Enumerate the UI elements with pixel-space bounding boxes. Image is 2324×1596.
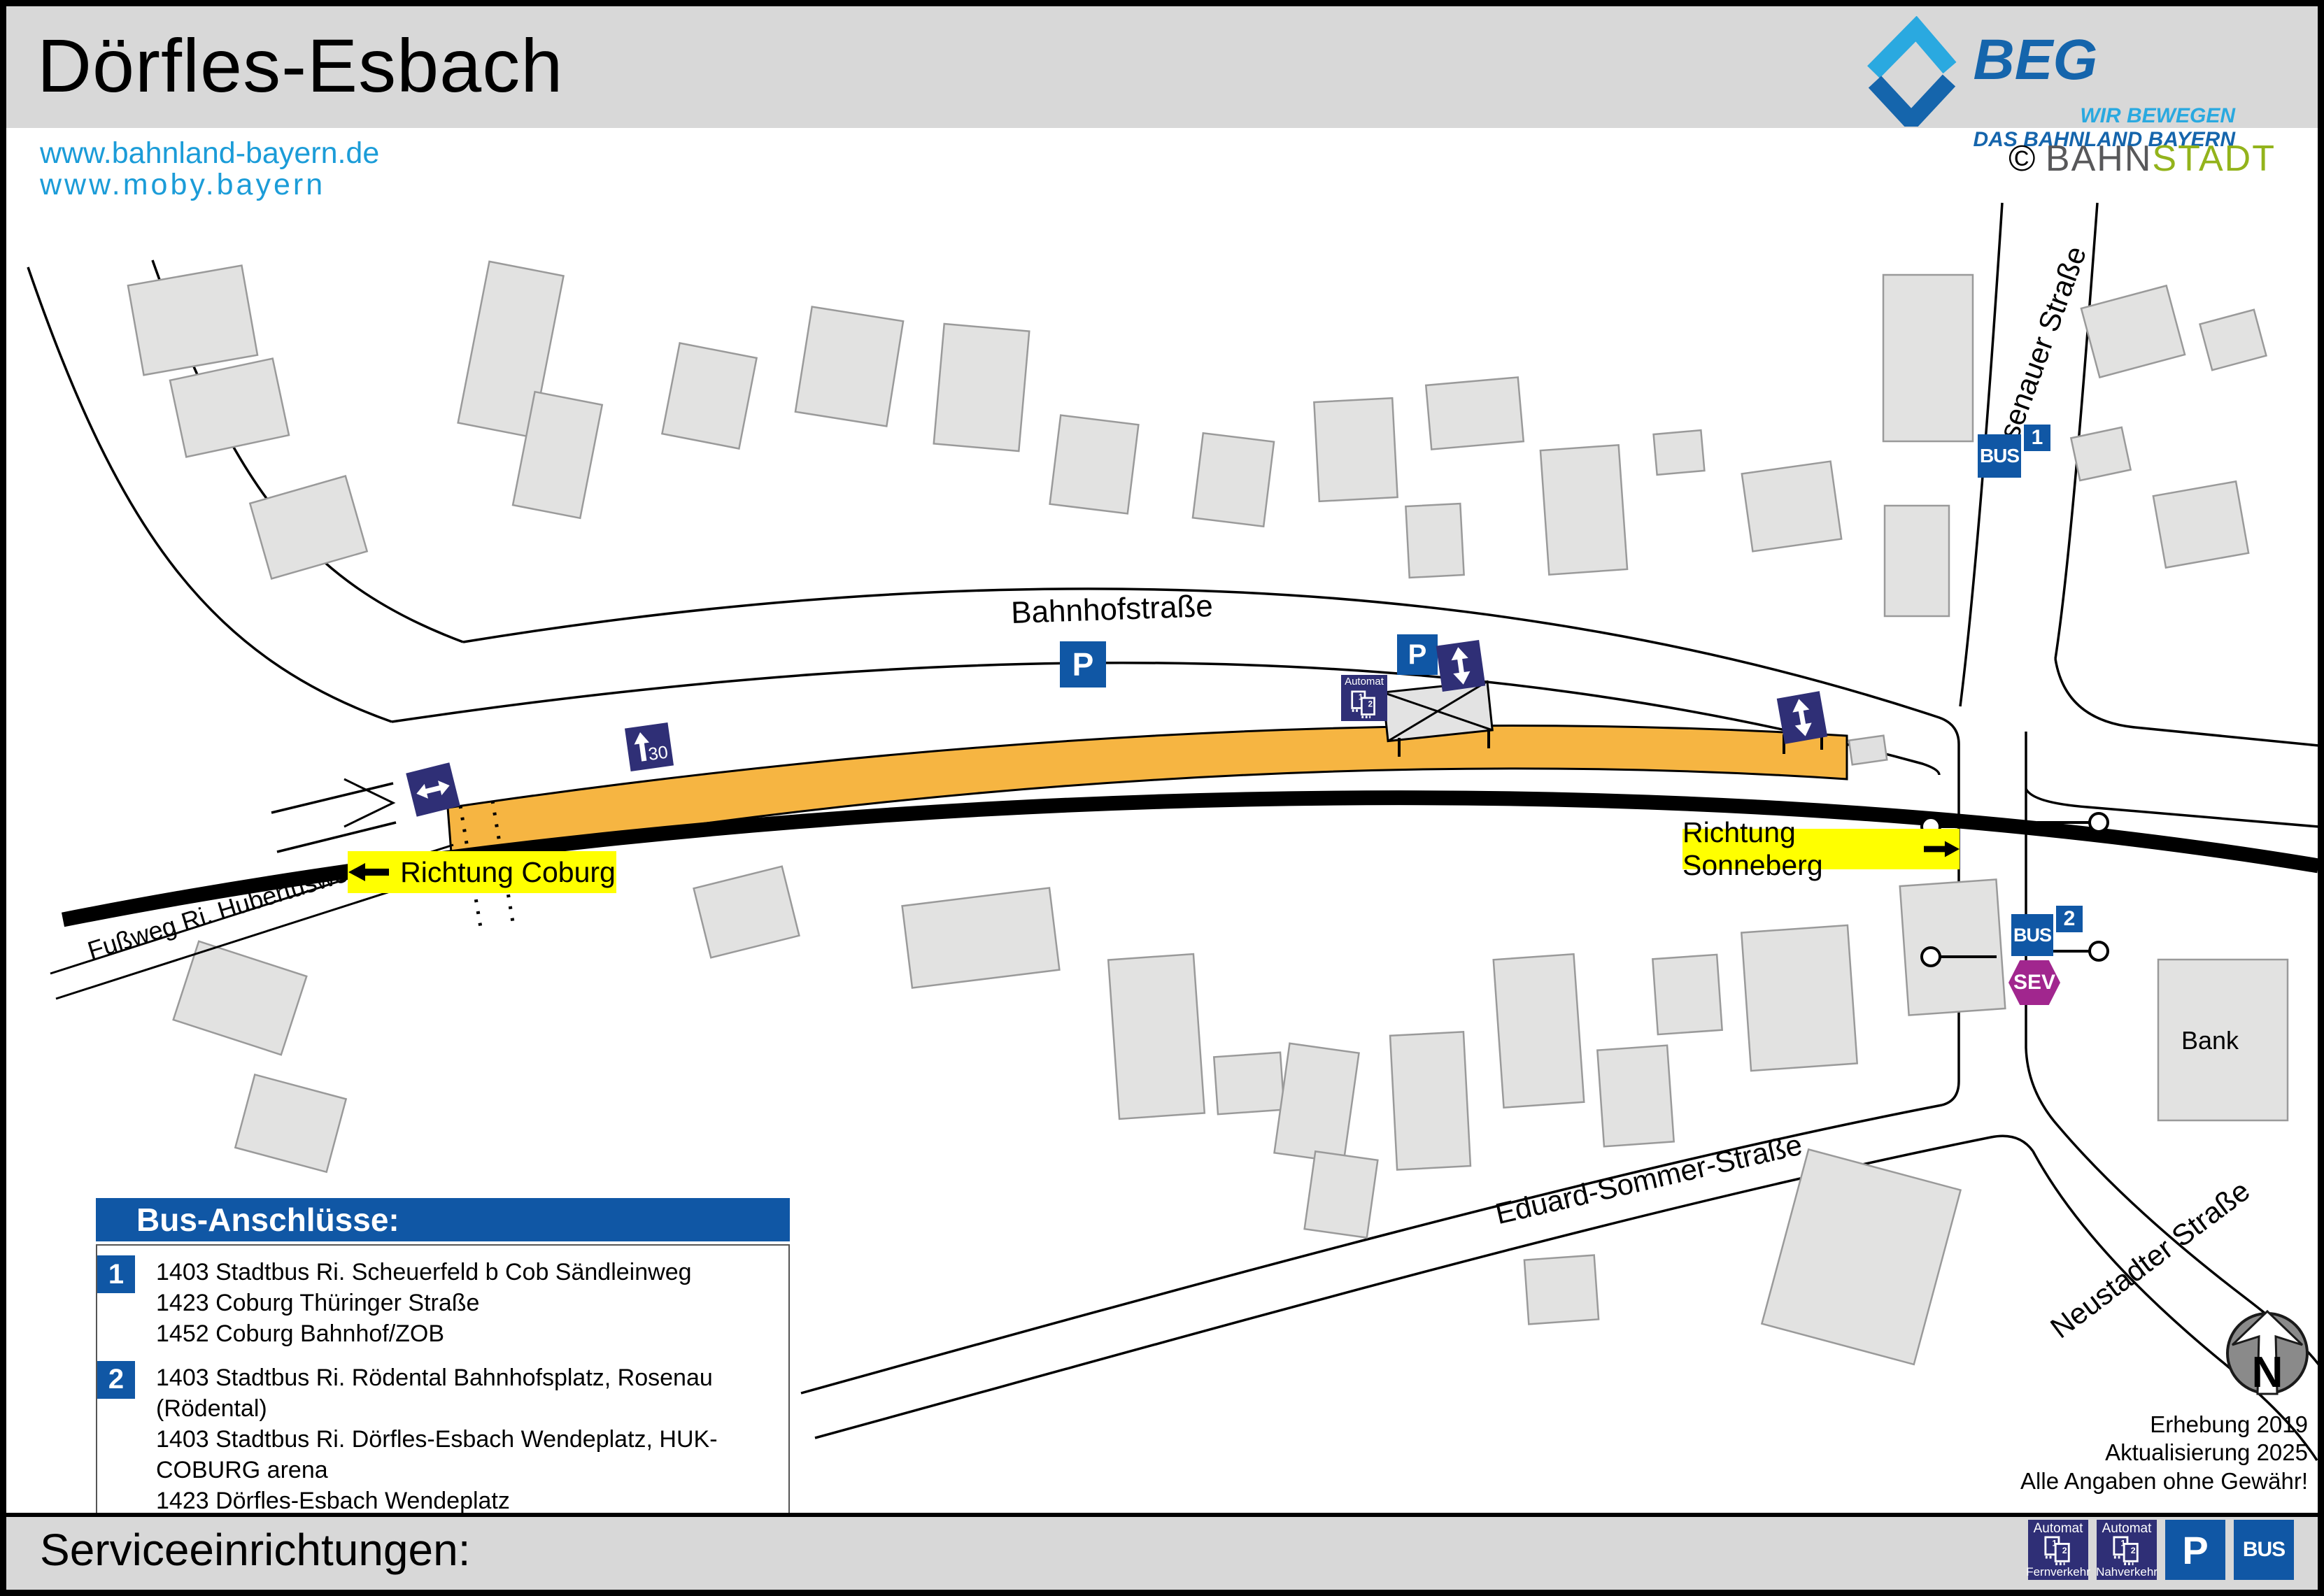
direction-coburg-label: Richtung Coburg: [400, 856, 616, 889]
legend-group-1: 1 1403 Stadtbus Ri. Scheuerfeld b Cob Sä…: [97, 1255, 788, 1350]
svg-text:30: 30: [647, 742, 669, 764]
compass-n: N: [2252, 1348, 2283, 1397]
automat-fernverkehr-icon: Automat 1 2 Fernverkehr: [2028, 1520, 2088, 1580]
building: [795, 307, 903, 427]
copyright-icon: ©: [2008, 138, 2035, 179]
note-survey: Erhebung 2019: [1944, 1411, 2308, 1439]
note-disclaimer: Alle Angaben ohne Gewähr!: [1944, 1467, 2308, 1495]
legend-title: Bus-Anschlüsse:: [96, 1198, 790, 1241]
direction-sonneberg: Richtung Sonneberg: [1682, 829, 1960, 869]
beg-logo: BEG WIR BEWEGEN DAS BAHNLAND BAYERN: [1856, 16, 2235, 152]
building: [1390, 1032, 1471, 1169]
building: [2081, 285, 2185, 377]
legend-stop-1-badge: 1: [97, 1255, 135, 1293]
bahnstadt-stadt: STADT: [2152, 138, 2276, 179]
bus-stop-number: 1: [2032, 426, 2043, 450]
building: [1540, 445, 1627, 574]
building: [1652, 955, 1722, 1034]
building: [1274, 1043, 1359, 1162]
building: [170, 359, 289, 457]
automat-label: Automat: [2034, 1522, 2083, 1535]
beg-wordmark: BEG: [1974, 34, 2235, 86]
shelter: [1383, 681, 1492, 741]
bus-route: 1403 Stadtbus Ri. Rödental Bahnhofsplatz…: [156, 1362, 788, 1424]
building: [250, 476, 367, 579]
building: [1193, 433, 1274, 527]
parking-letter: P: [1072, 646, 1094, 683]
beg-tagline-1: WIR BEWEGEN: [1974, 104, 2235, 128]
sev-label: SEV: [2013, 971, 2055, 995]
svg-text:2: 2: [2131, 1546, 2136, 1555]
building: [2200, 310, 2267, 370]
building: [1108, 954, 1205, 1119]
building: [1654, 430, 1705, 475]
bus-connections-legend: Bus-Anschlüsse: 1 1403 Stadtbus Ri. Sche…: [96, 1198, 790, 1562]
nahverkehr-label: Nahverkehr: [2096, 1566, 2158, 1578]
platform-access-icon-east: [1777, 691, 1828, 744]
platform-marker-30-icon: 30: [625, 722, 674, 771]
building: [1885, 506, 1949, 616]
direction-sonneberg-label: Richtung Sonneberg: [1682, 816, 1913, 882]
link-moby-bayern[interactable]: www.moby.bayern: [40, 169, 379, 201]
parking-icon-east: P: [1397, 634, 1438, 675]
building: [1426, 377, 1524, 449]
bus-label: BUS: [2243, 1538, 2285, 1562]
bahnstadt-credit: © BAHNSTADT: [2008, 138, 2276, 180]
building: [1305, 1151, 1378, 1237]
bahnstadt-bahn: BAHN: [2046, 138, 2152, 179]
bus-route: 1403 Stadtbus Ri. Dörfles-Esbach Wendepl…: [156, 1424, 788, 1485]
building: [662, 343, 756, 449]
bank-label: Bank: [2181, 1026, 2239, 1055]
bus-route: 1403 Stadtbus Ri. Scheuerfeld b Cob Sänd…: [156, 1257, 692, 1288]
arrow-left-icon: [348, 862, 389, 883]
website-links: www.bahnland-bayern.de www.moby.bayern: [40, 138, 379, 201]
link-bahnland-bayern[interactable]: www.bahnland-bayern.de: [40, 138, 379, 169]
automat-nahverkehr-icon: Automat 1 2 Nahverkehr: [2097, 1520, 2157, 1580]
building: [173, 941, 307, 1055]
arrow-right-icon: [1924, 839, 1960, 860]
building: [934, 324, 1030, 451]
fernverkehr-label: Fernverkehr: [2026, 1566, 2090, 1578]
automat-label: Automat: [2102, 1522, 2152, 1535]
bus-stop-2-number: 2: [2056, 906, 2083, 932]
building: [1314, 398, 1397, 501]
bus-label: BUS: [1980, 445, 2019, 467]
svg-text:2: 2: [1368, 699, 1373, 708]
building: [1494, 954, 1585, 1108]
svg-text:2: 2: [2062, 1546, 2067, 1555]
bus-route: 1452 Coburg Bahnhof/ZOB: [156, 1318, 692, 1349]
building: [1900, 879, 2006, 1015]
platform-access-icon-mid: [1436, 640, 1486, 692]
bus-stop-1-number: 1: [2024, 425, 2050, 451]
station-environment-map: Bahnhofstraße Rosenauer Straße Eduard-So…: [0, 0, 2324, 1596]
street-label-bahnhofstrasse: Bahnhofstraße: [1010, 589, 1213, 630]
building: [2153, 481, 2248, 567]
bus-stop-number: 2: [2064, 907, 2076, 931]
building: [1883, 275, 1973, 441]
building: [902, 888, 1060, 988]
bus-label: BUS: [2013, 925, 2051, 946]
bus-stop-1-icon: BUS: [1978, 434, 2021, 478]
beg-diamond-icon: [1856, 16, 1961, 127]
building: [1741, 925, 1857, 1071]
small-structure: [1849, 736, 1887, 765]
building: [2071, 427, 2130, 480]
building: [1050, 415, 1139, 514]
parking-letter: P: [1408, 639, 1427, 671]
building: [235, 1074, 346, 1171]
ticket-machine-icon: Automat 1 2: [1341, 675, 1387, 721]
footer-title: Serviceeinrichtungen:: [40, 1524, 470, 1576]
bus-route: 1423 Dörfles-Esbach Wendeplatz: [156, 1485, 788, 1516]
parking-letter: P: [2182, 1527, 2208, 1573]
building: [1597, 1046, 1673, 1147]
building: [694, 867, 800, 957]
legend-stop-2-badge: 2: [97, 1361, 135, 1399]
automat-label: Automat: [1345, 676, 1384, 687]
north-compass: N: [2223, 1309, 2312, 1402]
parking-icon-west: P: [1060, 641, 1106, 687]
direction-coburg: Richtung Coburg: [348, 851, 616, 893]
building: [1214, 1053, 1284, 1114]
building: [1742, 462, 1841, 552]
bus-service-icon: BUS: [2234, 1520, 2294, 1580]
note-update: Aktualisierung 2025: [1944, 1439, 2308, 1467]
building: [128, 266, 257, 376]
page-title: Dörfles-Esbach: [37, 22, 563, 109]
service-icons: Automat 1 2 Fernverkehr Automat 1 2 Nahv: [2028, 1520, 2294, 1580]
building: [1405, 504, 1464, 578]
map-notes: Erhebung 2019 Aktualisierung 2025 Alle A…: [1944, 1411, 2308, 1495]
parking-service-icon: P: [2165, 1520, 2225, 1580]
building: [1524, 1255, 1599, 1325]
bus-route: 1423 Coburg Thüringer Straße: [156, 1288, 692, 1318]
bus-stop-2-icon: BUS: [2011, 914, 2053, 956]
